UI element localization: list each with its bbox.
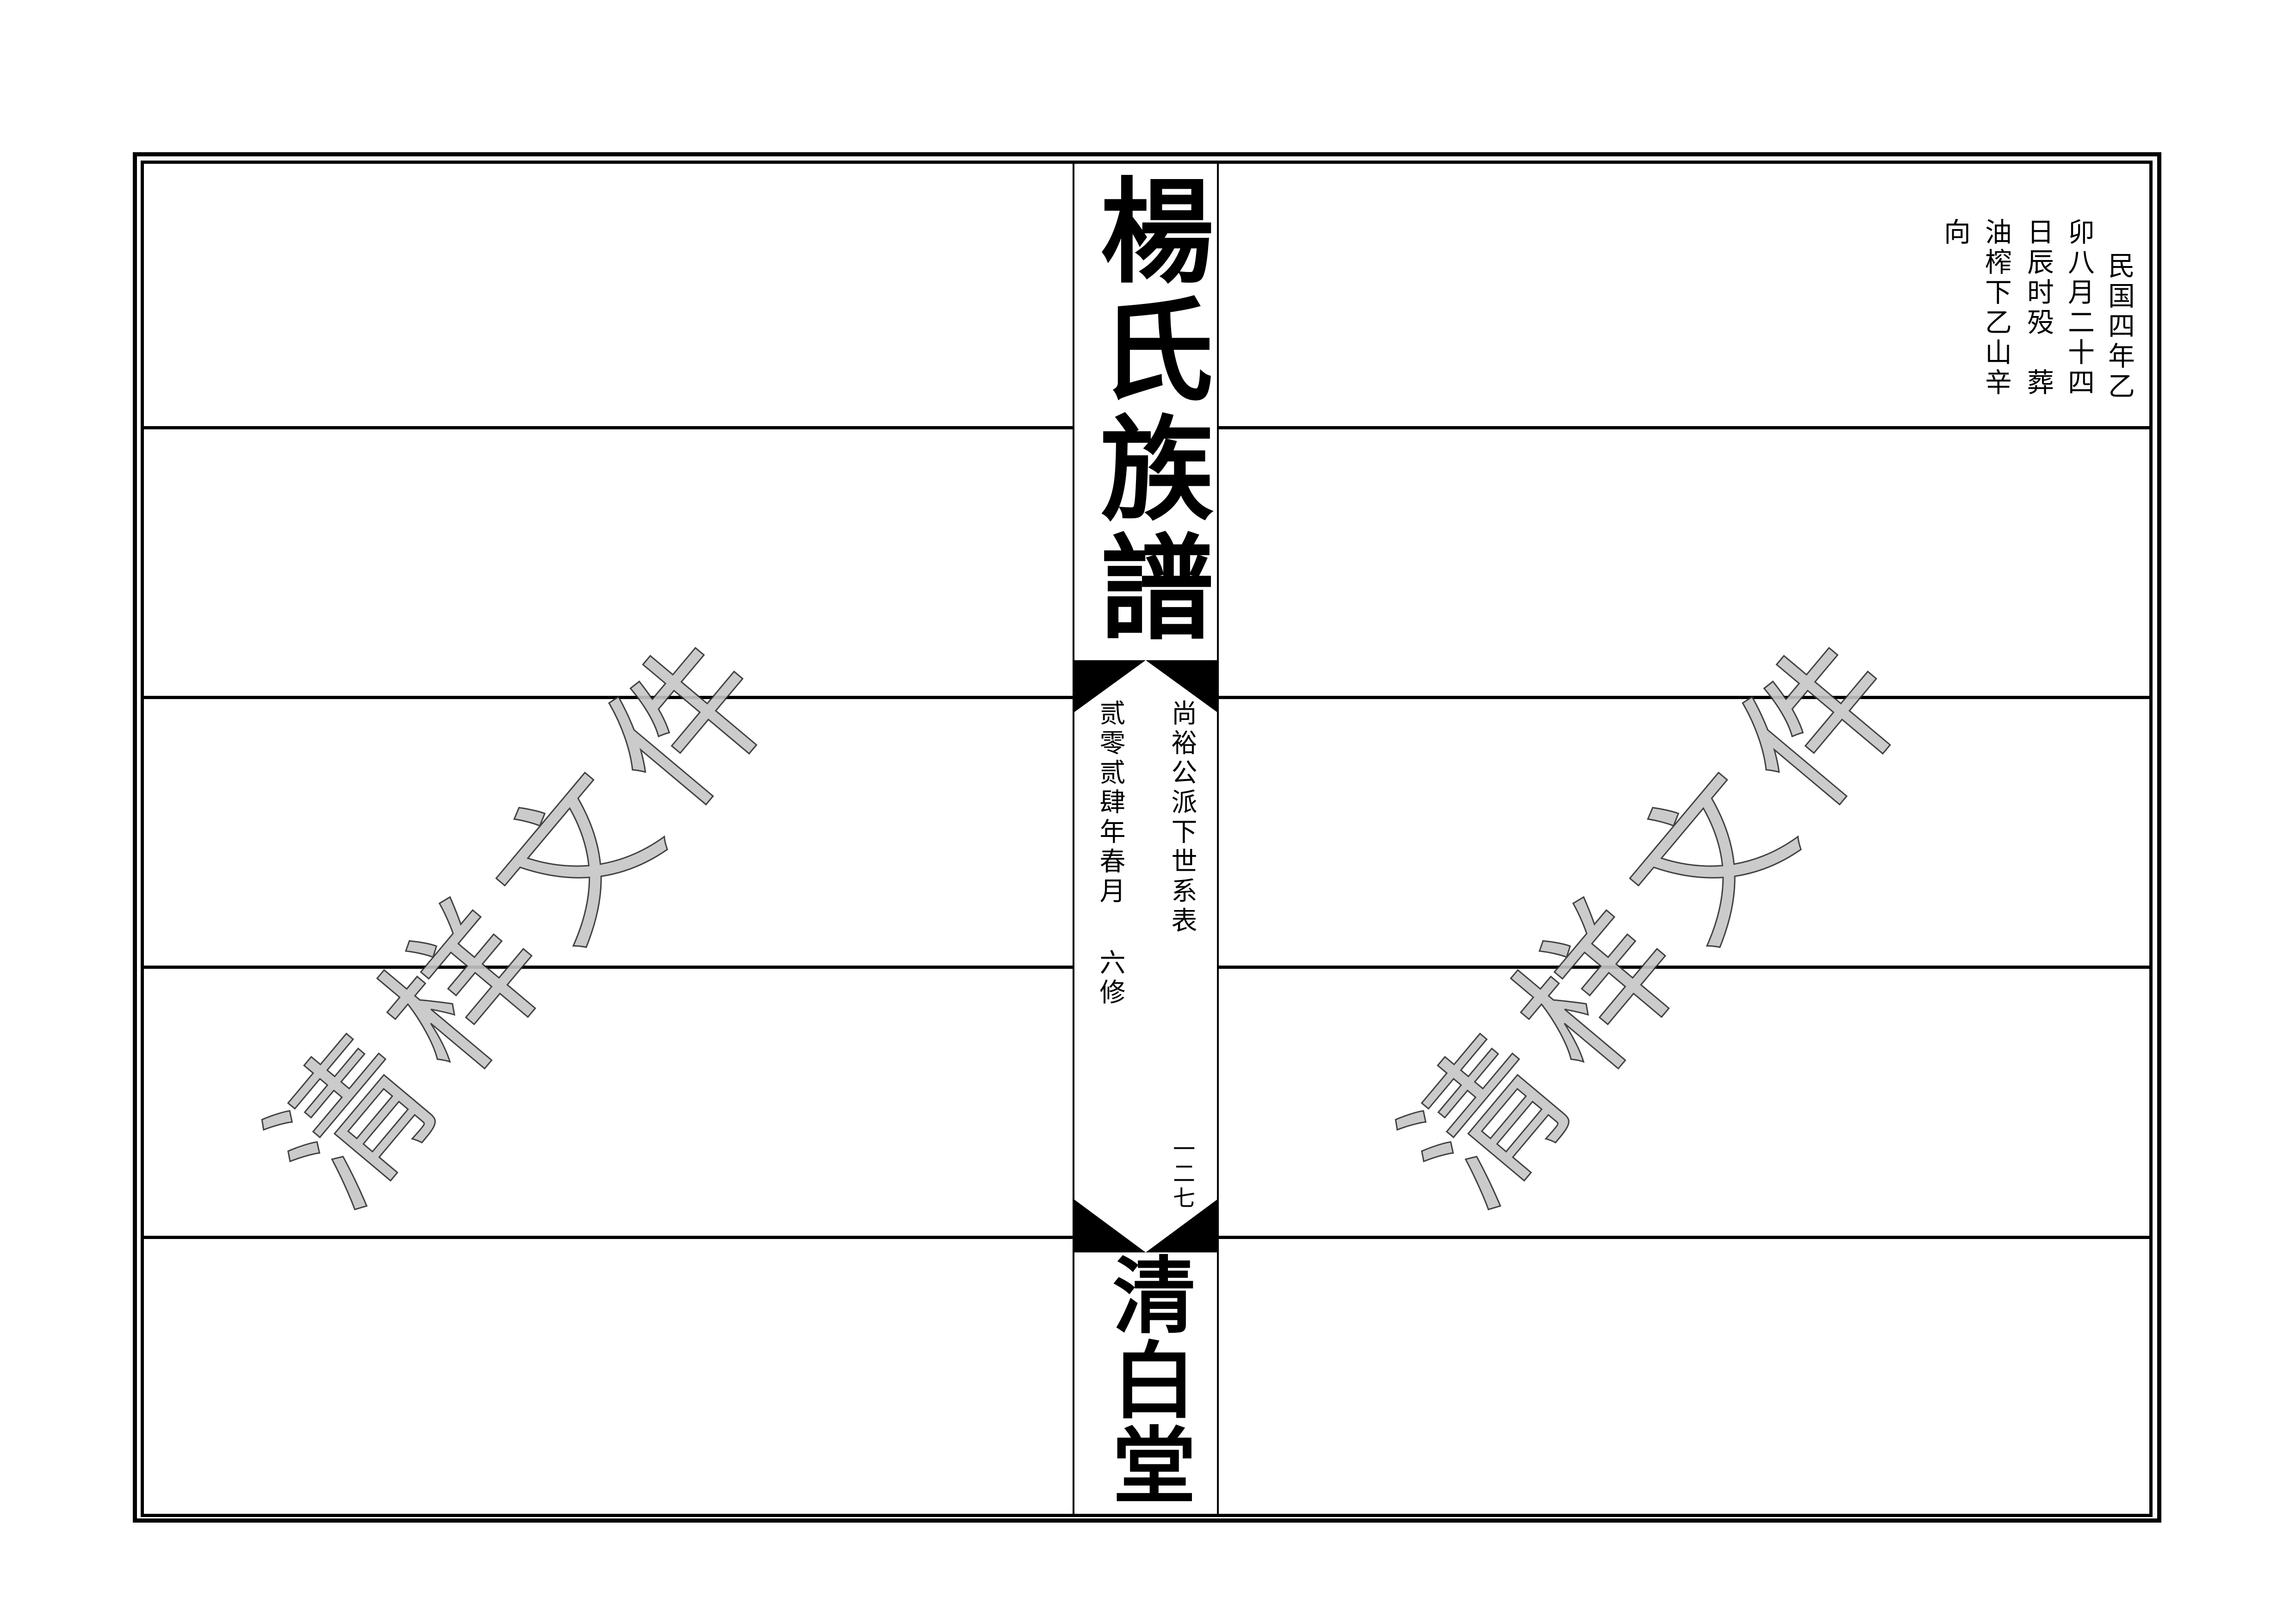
record-column: 日辰时殁 葬 xyxy=(2024,218,2051,398)
spine-right-rule xyxy=(1217,164,1219,1517)
row-line-right-4 xyxy=(1219,1236,2149,1239)
spine-hall-name: 清白堂 xyxy=(1104,1252,1187,1507)
spine-edition-year: 贰零贰肆年春月 xyxy=(1097,700,1123,907)
record-column: 油榨下乙山辛 xyxy=(1982,218,2009,398)
spine-edition-label: 六修 xyxy=(1097,949,1123,1008)
spine-left-rule xyxy=(1073,164,1074,1517)
record-column: 向 xyxy=(1941,218,1968,248)
row-line-right-1 xyxy=(1219,426,2149,429)
record-column: 民国四年乙 xyxy=(2105,252,2132,402)
spine-section-title: 尚裕公派下世系表 xyxy=(1169,700,1195,936)
row-line-left-1 xyxy=(144,426,1073,429)
row-line-left-4 xyxy=(144,1236,1073,1239)
record-column: 卯八月二十四 xyxy=(2065,218,2092,398)
spine-book-title: 楊氏族譜 xyxy=(1089,172,1203,648)
genealogy-page: 楊氏族譜 尚裕公派下世系表 贰零贰肆年春月 六修 一二七 清白堂 民国四年乙 卯… xyxy=(0,0,2296,1623)
fishtail-bottom-mark xyxy=(1074,1200,1217,1252)
